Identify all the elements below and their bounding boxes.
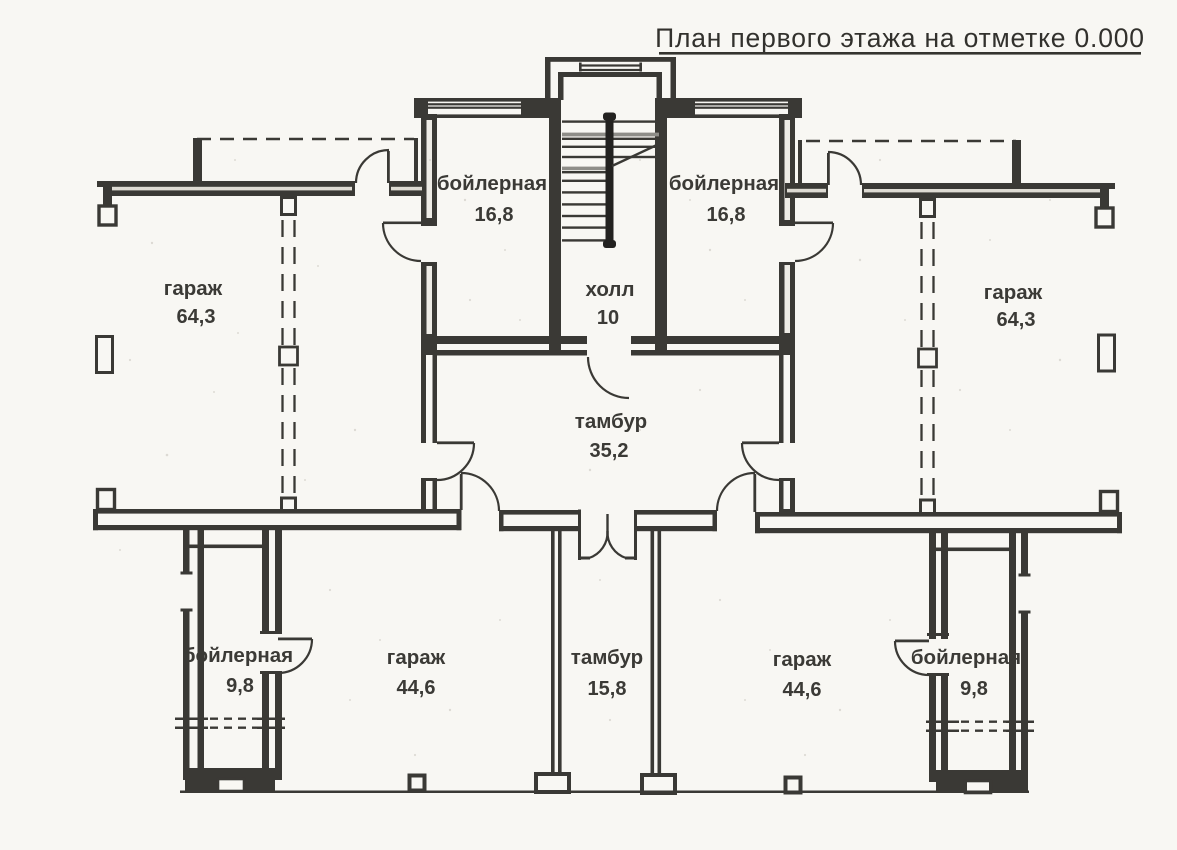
svg-text:64,3: 64,3 (997, 309, 1036, 331)
svg-text:тамбур: тамбур (575, 410, 647, 433)
svg-text:тамбур: тамбур (571, 646, 643, 669)
svg-text:64,3: 64,3 (177, 306, 216, 328)
svg-text:холл: холл (586, 278, 635, 301)
svg-text:гараж: гараж (164, 277, 223, 300)
svg-text:44,6: 44,6 (783, 679, 822, 701)
svg-text:16,8: 16,8 (707, 204, 746, 226)
svg-text:бойлерная: бойлерная (437, 172, 547, 195)
svg-text:гараж: гараж (387, 646, 446, 669)
svg-text:9,8: 9,8 (960, 678, 988, 700)
svg-text:35,2: 35,2 (590, 440, 629, 462)
svg-text:44,6: 44,6 (397, 677, 436, 699)
svg-text:9,8: 9,8 (226, 675, 254, 697)
svg-text:бойлерная: бойлерная (669, 172, 779, 195)
svg-text:гараж: гараж (984, 281, 1043, 304)
svg-text:гараж: гараж (773, 648, 832, 671)
svg-text:бойлерная: бойлерная (183, 644, 293, 667)
svg-text:15,8: 15,8 (588, 678, 627, 700)
svg-text:План первого этажа на отметке: План первого этажа на отметке 0.000 (655, 23, 1145, 53)
svg-text:10: 10 (597, 307, 619, 329)
svg-text:16,8: 16,8 (475, 204, 514, 226)
svg-text:бойлерная: бойлерная (911, 646, 1021, 669)
